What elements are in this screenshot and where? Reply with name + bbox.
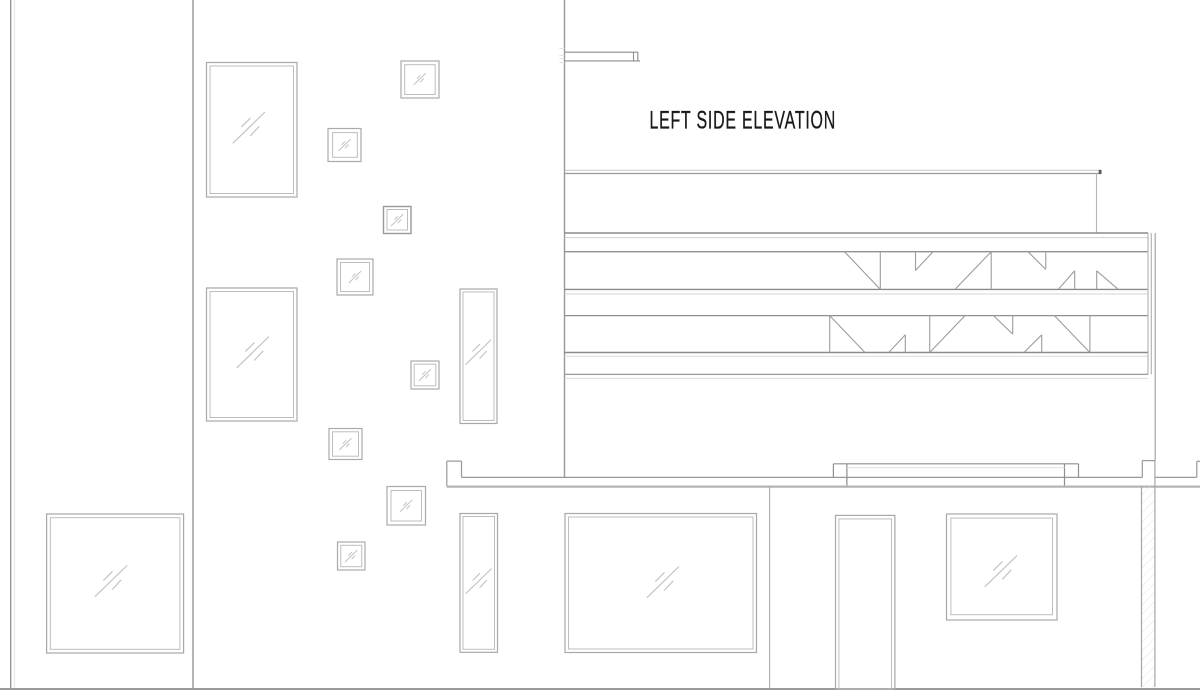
svg-text:LEFT SIDE ELEVATION: LEFT SIDE ELEVATION	[650, 107, 837, 135]
